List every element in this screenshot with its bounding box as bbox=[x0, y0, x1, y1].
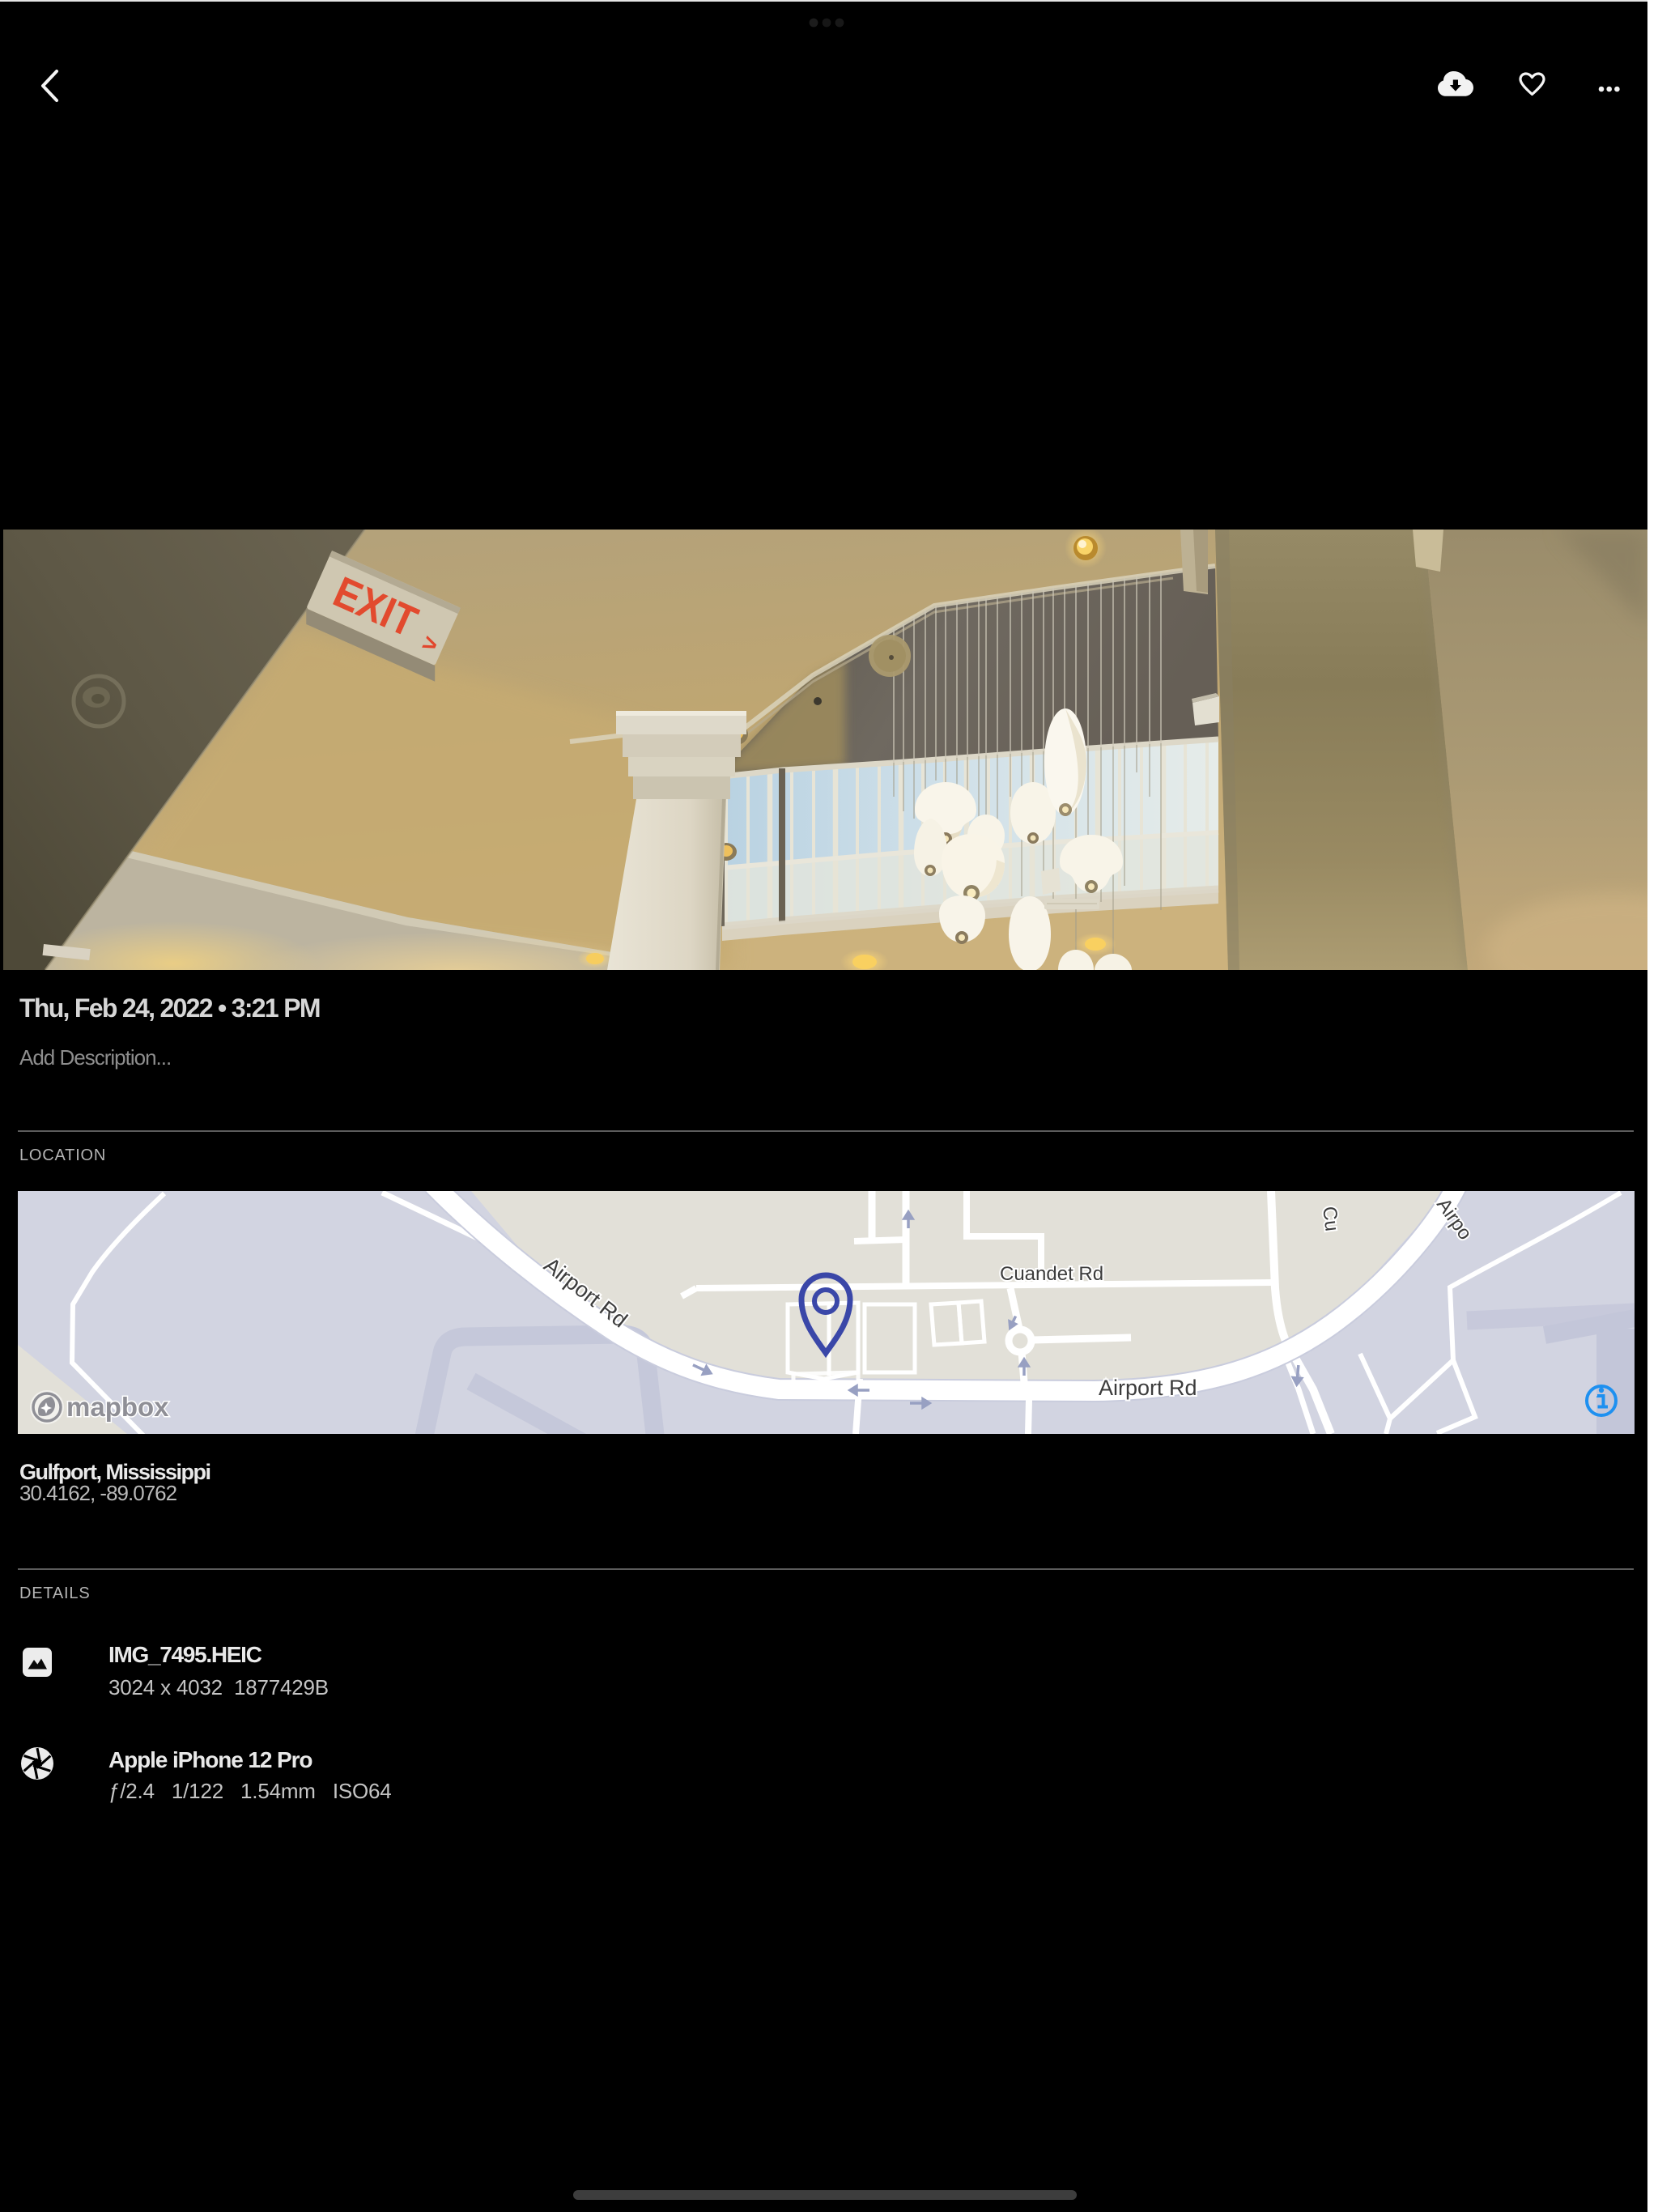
svg-text:Airport Rd: Airport Rd bbox=[1099, 1376, 1197, 1400]
svg-text:Cu: Cu bbox=[1318, 1205, 1343, 1232]
svg-text:mapbox: mapbox bbox=[66, 1392, 169, 1422]
svg-text:Cuandet Rd: Cuandet Rd bbox=[1000, 1263, 1103, 1285]
